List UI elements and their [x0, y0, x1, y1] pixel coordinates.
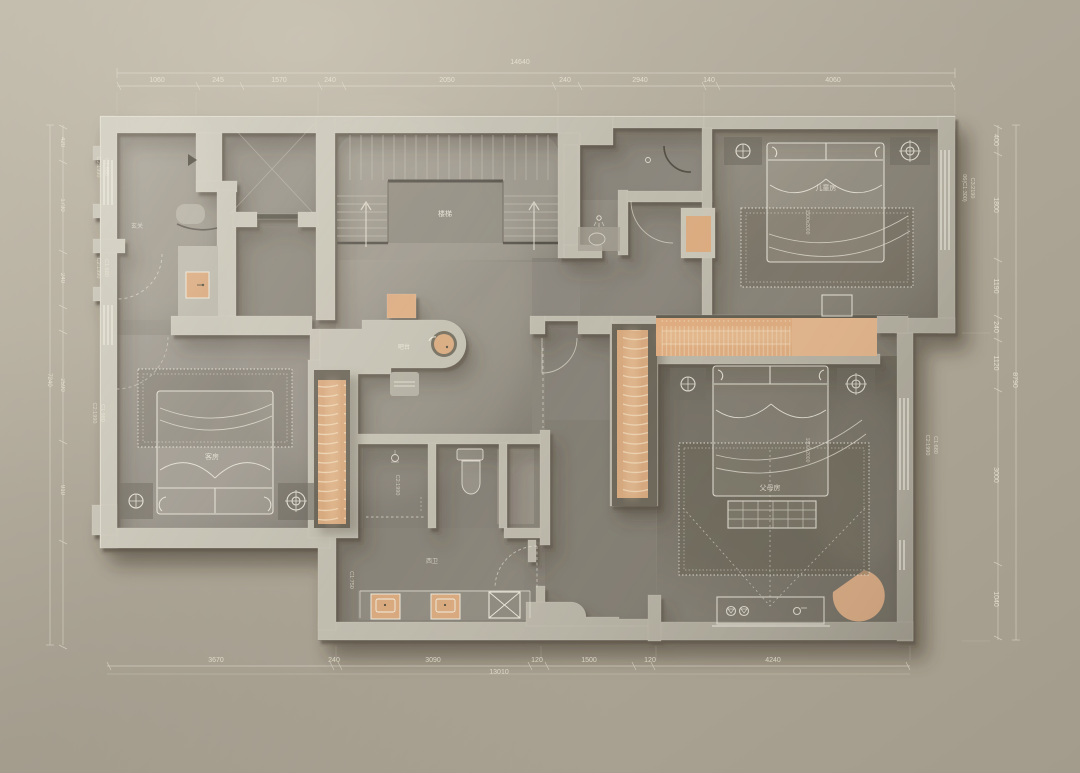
svg-text:C2:1990: C2:1990: [924, 435, 930, 456]
svg-text:910: 910: [59, 485, 65, 496]
svg-text:C2:1990: C2:1990: [95, 157, 101, 178]
svg-text:140: 140: [703, 77, 715, 84]
svg-text:420: 420: [59, 137, 65, 148]
svg-text:240: 240: [559, 77, 571, 84]
svg-text:2590: 2590: [59, 378, 65, 392]
svg-text:120: 120: [644, 657, 656, 664]
svg-text:1060: 1060: [149, 77, 165, 84]
svg-text:240: 240: [328, 657, 340, 664]
svg-text:C2:1990: C2:1990: [95, 258, 101, 279]
svg-text:C1:750: C1:750: [348, 571, 354, 589]
svg-text:14640: 14640: [510, 59, 530, 66]
svg-text:240: 240: [992, 321, 999, 333]
svg-text:1500: 1500: [581, 657, 597, 664]
svg-text:8790: 8790: [1011, 372, 1018, 388]
svg-text:400: 400: [992, 134, 999, 146]
svg-text:2940: 2940: [632, 77, 648, 84]
svg-text:C2:1990: C2:1990: [394, 475, 400, 496]
svg-text:C1:980: C1:980: [99, 404, 105, 422]
svg-text:C1:680: C1:680: [103, 259, 109, 277]
svg-text:3000: 3000: [992, 467, 999, 483]
svg-text:4060: 4060: [825, 77, 841, 84]
svg-text:1120: 1120: [992, 355, 999, 370]
svg-text:4240: 4240: [765, 657, 781, 664]
svg-text:3090: 3090: [425, 657, 441, 664]
svg-text:1190: 1190: [992, 278, 999, 293]
svg-text:13010: 13010: [489, 669, 509, 676]
svg-text:C1:680: C1:680: [932, 436, 938, 454]
svg-text:120: 120: [531, 657, 543, 664]
svg-text:C2:1990: C2:1990: [91, 403, 97, 424]
svg-text:7240: 7240: [46, 373, 52, 387]
svg-text:1040: 1040: [992, 591, 999, 607]
svg-text:2050: 2050: [439, 77, 455, 84]
svg-text:3670: 3670: [208, 657, 224, 664]
svg-text:06(C1:300): 06(C1:300): [961, 174, 967, 202]
svg-text:1800: 1800: [992, 197, 999, 213]
svg-text:C3:2190: C3:2190: [969, 178, 975, 199]
svg-text:240: 240: [324, 77, 336, 84]
svg-text:245: 245: [212, 77, 224, 84]
svg-text:1570: 1570: [271, 77, 287, 84]
svg-text:1730: 1730: [59, 198, 65, 212]
svg-text:240: 240: [59, 273, 65, 284]
